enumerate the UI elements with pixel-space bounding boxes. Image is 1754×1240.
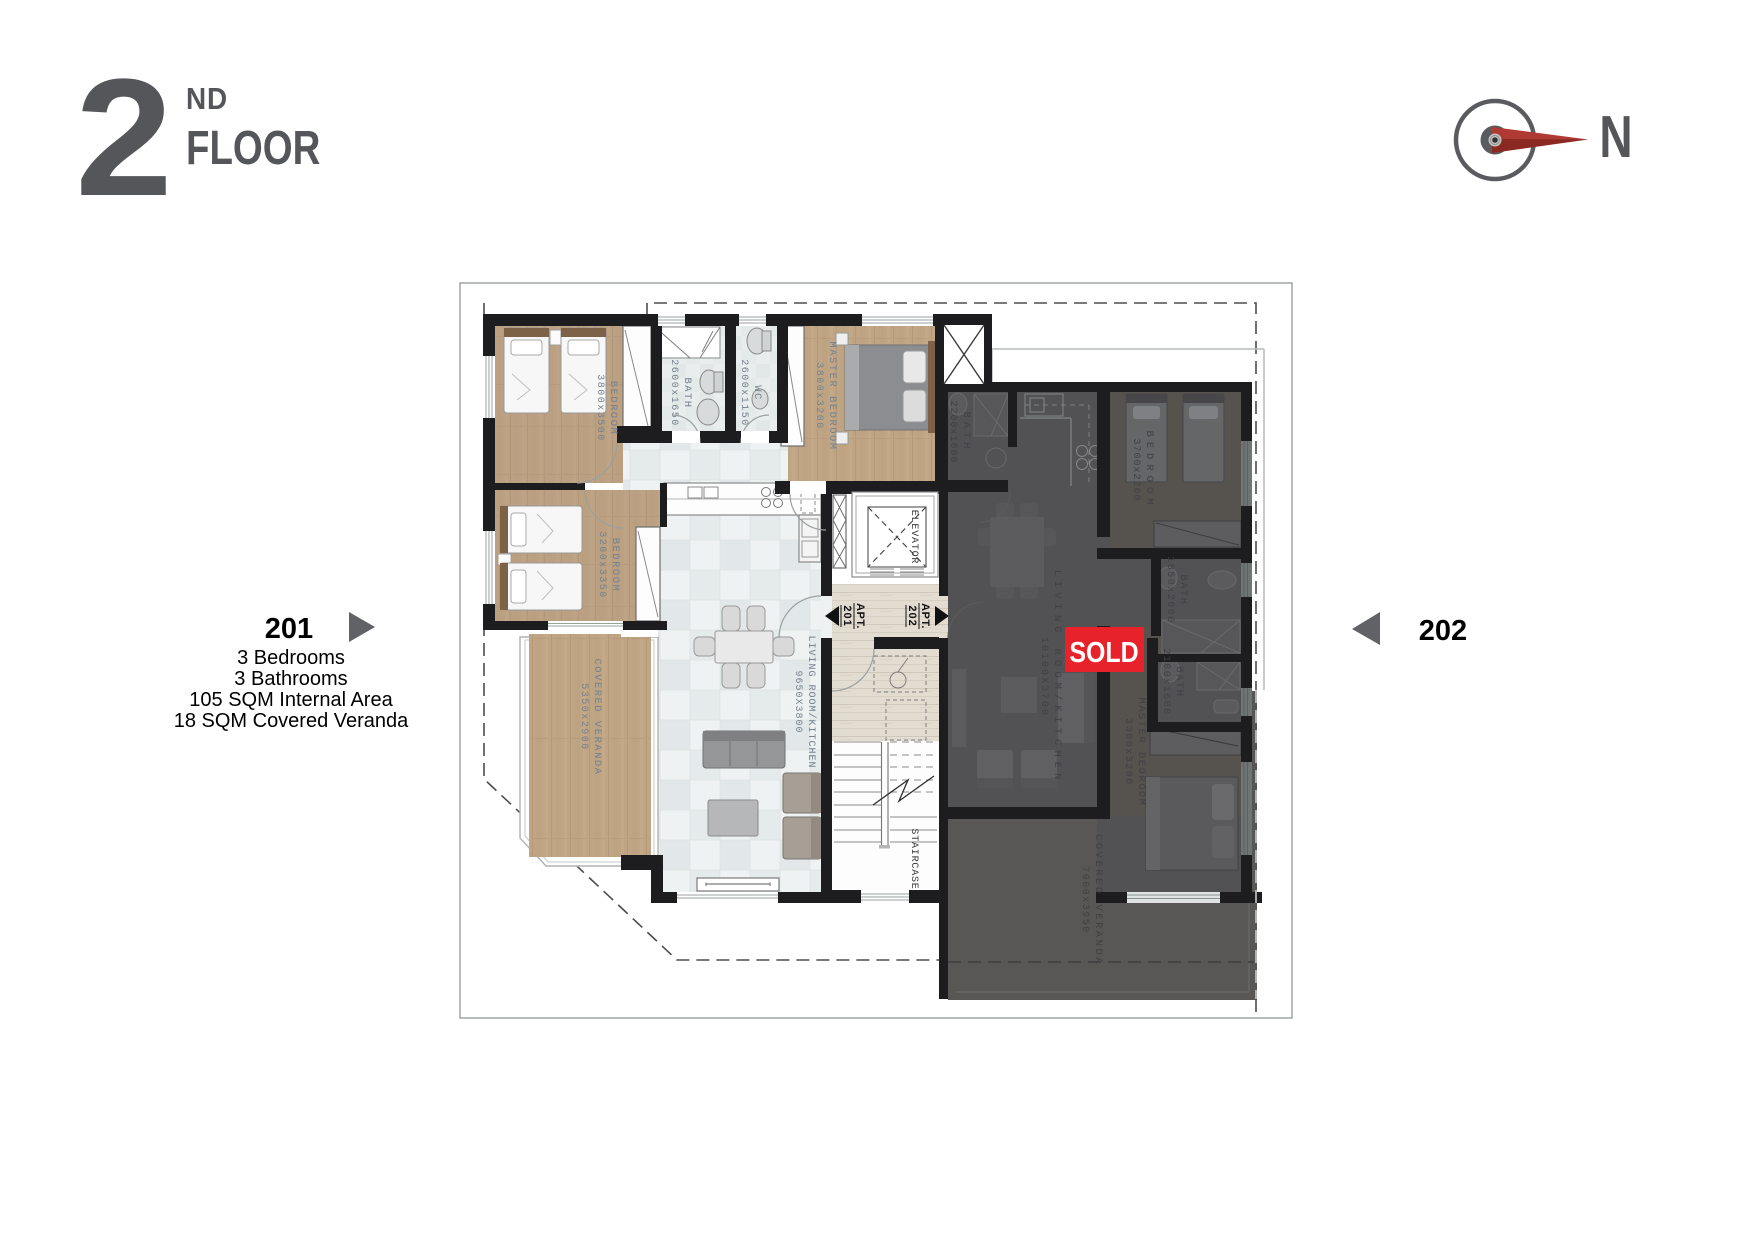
svg-text:BEDROOM: BEDROOM xyxy=(607,381,619,436)
svg-text:3800x3200: 3800x3200 xyxy=(813,362,824,430)
svg-text:5350x2900: 5350x2900 xyxy=(578,683,589,751)
svg-text:201: 201 xyxy=(265,613,313,645)
svg-text:3200x3350: 3200x3350 xyxy=(596,531,607,599)
svg-text:COVERED VERANDA: COVERED VERANDA xyxy=(1092,834,1104,966)
svg-text:BATH: BATH xyxy=(681,377,693,408)
svg-text:ELEVATOR: ELEVATOR xyxy=(908,510,919,564)
svg-text:COVERED VERANDA: COVERED VERANDA xyxy=(591,658,603,775)
svg-text:3 Bathrooms: 3 Bathrooms xyxy=(234,668,347,690)
svg-text:STAIRCASE: STAIRCASE xyxy=(908,828,919,889)
svg-text:1850x2000: 1850x2000 xyxy=(1164,556,1175,624)
svg-text:BATH: BATH xyxy=(1173,666,1185,697)
svg-text:9650X3800: 9650X3800 xyxy=(792,670,803,733)
svg-text:2200x1600: 2200x1600 xyxy=(947,400,958,463)
svg-text:2600x1150: 2600x1150 xyxy=(738,359,749,427)
svg-text:APT.: APT. xyxy=(919,603,931,629)
svg-text:MASTER BEDROOM: MASTER BEDROOM xyxy=(1135,697,1147,806)
svg-text:FLOOR: FLOOR xyxy=(186,122,320,175)
svg-text:201: 201 xyxy=(841,605,853,626)
svg-text:LIVING ROOM/KITCHEN: LIVING ROOM/KITCHEN xyxy=(1051,570,1063,785)
svg-text:105 SQM Internal Area: 105 SQM Internal Area xyxy=(189,689,393,711)
svg-text:202: 202 xyxy=(906,605,918,626)
svg-text:2600x1650: 2600x1650 xyxy=(668,359,679,427)
svg-text:3 Bedrooms: 3 Bedrooms xyxy=(237,647,345,669)
svg-text:2: 2 xyxy=(75,45,173,231)
svg-text:WC: WC xyxy=(751,385,763,401)
svg-text:N: N xyxy=(1599,105,1632,171)
svg-text:18 SQM Covered Veranda: 18 SQM Covered Veranda xyxy=(174,710,409,732)
svg-text:BATH: BATH xyxy=(1177,574,1189,605)
svg-text:3700x2200: 3700x2200 xyxy=(1130,438,1141,501)
svg-text:2100x1600: 2100x1600 xyxy=(1160,648,1171,716)
svg-text:10100X3700: 10100X3700 xyxy=(1038,637,1049,717)
svg-text:3800x3500: 3800x3500 xyxy=(594,374,605,442)
svg-text:LIVING ROOM/KITCHEN: LIVING ROOM/KITCHEN xyxy=(805,635,817,768)
svg-text:BEDROOM: BEDROOM xyxy=(1143,430,1155,509)
svg-text:APT.: APT. xyxy=(854,603,866,629)
svg-text:BEDROOM: BEDROOM xyxy=(609,538,621,593)
svg-text:3300x3200: 3300x3200 xyxy=(1122,718,1133,786)
svg-text:MASTER BEDROOM: MASTER BEDROOM xyxy=(826,341,838,450)
svg-text:202: 202 xyxy=(1419,615,1467,647)
svg-text:ND: ND xyxy=(186,82,228,117)
svg-text:7000x3950: 7000x3950 xyxy=(1079,866,1090,934)
svg-text:SOLD: SOLD xyxy=(1069,636,1138,668)
svg-text:BATH: BATH xyxy=(960,411,972,452)
